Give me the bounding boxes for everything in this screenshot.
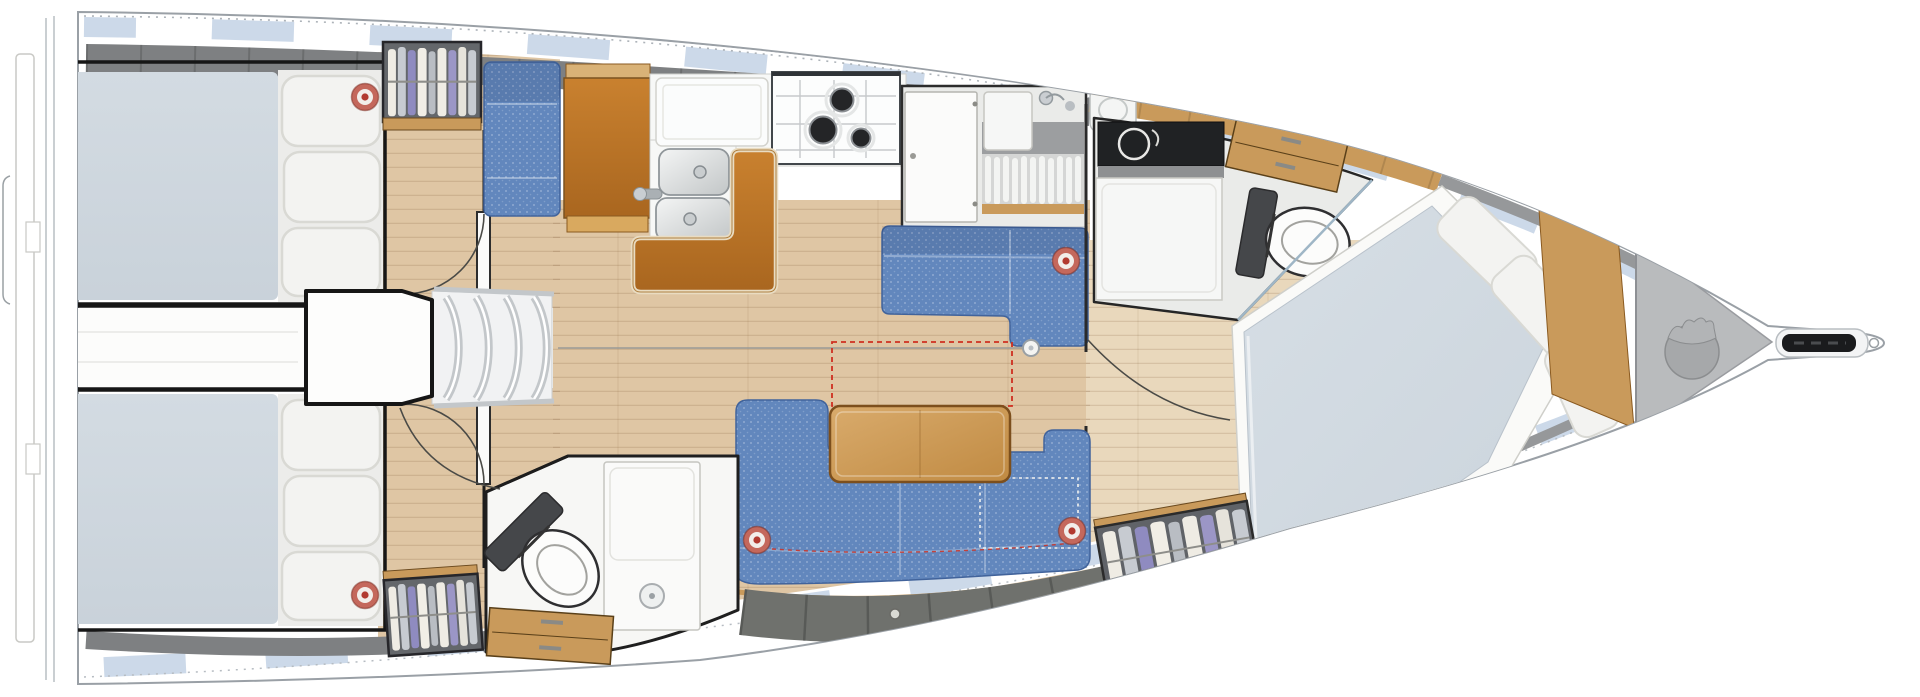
bow-hardware — [1776, 329, 1879, 357]
platform-panel — [16, 54, 34, 642]
transom-edge — [46, 16, 54, 682]
stove — [772, 72, 900, 164]
fridge-lid — [656, 78, 768, 146]
shower-sill — [982, 204, 1084, 214]
aft-stbd-berth-mattress — [52, 394, 278, 624]
interior — [50, 16, 1772, 677]
engine-room — [52, 306, 306, 389]
locker-knob — [890, 609, 900, 619]
red-ring-marker — [352, 582, 379, 609]
aft-port-berth-mattress — [52, 72, 278, 300]
swim-platform — [3, 16, 54, 682]
floor-plan-canvas — [0, 0, 1920, 697]
shower-grating — [982, 154, 1084, 206]
aft-head-drawers — [486, 608, 613, 665]
aft-port-hanging-locker — [383, 42, 481, 130]
nav-station — [484, 62, 650, 232]
forward-head-counter — [1098, 122, 1224, 166]
engine-box — [306, 291, 432, 404]
red-ring-marker — [744, 527, 771, 554]
aft-stbd-hanging-locker — [383, 565, 483, 656]
red-ring-marker — [352, 84, 379, 111]
salon-table — [830, 406, 1010, 482]
companionway — [306, 289, 554, 406]
door-handle — [910, 153, 916, 159]
aft-head-vanity — [604, 462, 700, 630]
shower-seat — [984, 92, 1032, 150]
forward-head-vanity — [1096, 178, 1222, 300]
boat-floor-plan — [0, 0, 1920, 697]
chart-table — [564, 64, 650, 232]
bow-eye — [1870, 339, 1879, 348]
shower-drain — [1065, 101, 1075, 111]
platform-step — [26, 444, 40, 474]
red-ring-marker — [1053, 248, 1080, 275]
red-ring-marker — [1059, 518, 1086, 545]
platform-step — [26, 222, 40, 252]
